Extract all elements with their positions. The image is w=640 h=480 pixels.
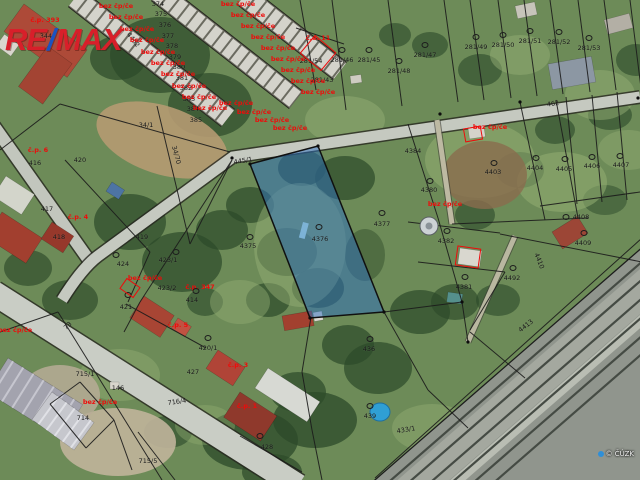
house-number-label: bez čp/če (301, 89, 335, 96)
building-use-icon (173, 249, 180, 255)
parcel-number-label: 420/1 (199, 345, 218, 352)
parcel-number-label: 146 (112, 385, 124, 392)
building-use-icon (462, 274, 469, 280)
parcel-number-label: 419 (136, 234, 148, 241)
parcel-number-label: 4382 (438, 238, 455, 245)
parcel-number-label: 4410 (533, 252, 545, 270)
building-use-icon (500, 32, 507, 38)
parcel-number-label: 414 (186, 297, 198, 304)
house-number-label: bez čp/če (130, 37, 164, 44)
parcel-number-label: 4380 (421, 187, 438, 194)
parcel-number-label: 34/1 (139, 122, 154, 129)
parcel-number-label: 716/4 (167, 397, 186, 406)
house-number-label: bez čp/če (99, 3, 133, 10)
building-use-icon (581, 230, 588, 236)
house-number-label: bez čp/če (0, 327, 32, 334)
building-use-icon (563, 214, 570, 220)
house-number-label: bez čp/če (120, 26, 154, 33)
building-use-icon (257, 433, 264, 439)
parcel-number-label: 380 (173, 64, 185, 71)
parcel-number-label: 281/51 (519, 38, 542, 45)
parcel-number-label: 714 (77, 415, 89, 422)
house-number-label: č.p. 6 (28, 147, 48, 154)
house-number-label: bez čp/če (83, 399, 117, 406)
building-outline (300, 35, 337, 71)
house-number-label: bez čp/če (128, 275, 162, 282)
parcel-number-label: 281/53 (578, 45, 601, 52)
map-labels-layer: 3443743753763773783793803813823833843853… (0, 0, 640, 480)
house-number-label: bez čp/če (261, 45, 295, 52)
parcel-number-label: 423/1 (159, 257, 178, 264)
building-use-icon (427, 178, 434, 184)
house-number-label: bez čp/če (182, 94, 216, 101)
house-number-label: bez čp/če (151, 60, 185, 67)
building-use-icon (316, 224, 323, 230)
parcel-number-label: 715/5 (139, 458, 158, 465)
parcel-number-label: 436 (363, 346, 375, 353)
house-number-label: bez čp/če (273, 125, 307, 132)
house-number-label: bez čp/če (193, 105, 227, 112)
house-number-label: bez čp/če (141, 49, 175, 56)
parcel-number-label: 281/43 (311, 77, 334, 84)
parcel-number-label: 4452 (125, 31, 140, 48)
parcel-number-label: 281/52 (548, 39, 571, 46)
parcel-number-label: 381 (176, 75, 188, 82)
parcel-number-label: 4375 (240, 243, 257, 250)
building-use-icon (339, 47, 346, 53)
parcel-number-label: 73 (63, 321, 74, 331)
building-use-icon (205, 335, 212, 341)
parcel-number-label: 281/47 (414, 52, 437, 59)
house-number-label: bez čp/če (251, 34, 285, 41)
building-use-icon (556, 29, 563, 35)
parcel-number-label: 462 (546, 100, 559, 108)
map-copyright: © ČÚZK (598, 450, 635, 458)
building-outline (455, 245, 482, 268)
building-use-icon (113, 252, 120, 258)
house-number-label: č.p. 347 (185, 284, 214, 291)
building-use-icon (527, 28, 534, 34)
parcel-number-label: 427 (187, 369, 199, 376)
parcel-number-label: 416 (29, 160, 41, 167)
house-number-label: bez čp/če (172, 83, 206, 90)
house-number-label: č.p. 3 (228, 362, 248, 369)
parcel-number-label: 4492 (504, 275, 521, 282)
house-number-label: bez čp/če (255, 117, 289, 124)
house-number-label: bez čp/če (219, 100, 253, 107)
parcel-number-label: 377 (162, 33, 174, 40)
house-number-label: bez čp/če (271, 56, 305, 63)
parcel-number-label: 423/2 (158, 285, 177, 292)
parcel-number-label: 4403 (485, 169, 502, 176)
parcel-number-label: 421 (120, 304, 132, 311)
house-number-label: bez čp/če (237, 109, 271, 116)
parcel-number-label: 374 (152, 1, 164, 8)
parcel-number-label: 418 (53, 234, 65, 241)
building-use-icon (586, 35, 593, 41)
building-use-icon (533, 155, 540, 161)
parcel-number-label: 715/1 (76, 371, 95, 378)
building-use-icon (396, 58, 403, 64)
parcel-number-label: 428 (261, 444, 273, 451)
building-outline (119, 278, 140, 298)
house-number-label: bez čp/če (109, 14, 143, 21)
building-use-icon (379, 210, 386, 216)
parcel-number-label: 4413 (517, 318, 534, 333)
house-number-label: č.p. 1 (237, 403, 257, 410)
parcel-number-label: 385 (190, 117, 202, 124)
logo-slash-icon: / (46, 22, 56, 57)
house-number-label: č.p. 4 (68, 214, 88, 221)
parcel-number-label: 417 (41, 206, 53, 213)
house-number-label: č.p. 5 (168, 322, 188, 329)
cadastral-map-image[interactable]: 3443743753763773783793803813823833843853… (0, 0, 640, 480)
parcel-number-label: 445/1 (233, 156, 253, 165)
map-provider-icon (598, 451, 604, 457)
building-use-icon (367, 403, 374, 409)
building-use-icon (589, 154, 596, 160)
parcel-number-label: 4408 (573, 214, 590, 221)
parcel-number-label: 382 (180, 85, 192, 92)
building-use-icon (473, 34, 480, 40)
logo-re: RE (5, 22, 46, 57)
house-number-label: bez čp/če (241, 23, 275, 30)
parcel-number-label: 4384 (405, 148, 422, 155)
parcel-number-label: 378 (166, 43, 178, 50)
parcel-number-label: 375 (155, 11, 167, 18)
building-outline (463, 126, 483, 143)
remax-logo: RE/MAX (5, 22, 122, 58)
house-number-label: bez čp/če (161, 71, 195, 78)
parcel-number-label: 420 (74, 157, 86, 164)
parcel-number-label: 4406 (584, 163, 601, 170)
parcel-number-label: 281/50 (492, 42, 515, 49)
parcel-number-label: 4381 (456, 284, 473, 291)
parcel-number-label: 281/49 (465, 44, 488, 51)
parcel-number-label: 4376 (312, 236, 329, 243)
parcel-number-label: 376 (159, 22, 171, 29)
building-use-icon (562, 156, 569, 162)
parcel-number-label: 424 (117, 261, 129, 268)
house-number-label: bez čp/če (281, 67, 315, 74)
parcel-number-label: 384 (187, 106, 199, 113)
building-use-icon (247, 234, 254, 240)
parcel-number-label: 383 (183, 96, 195, 103)
building-use-icon (491, 160, 498, 166)
house-number-label: bez čp/če (291, 78, 325, 85)
parcel-number-label: 281/46 (331, 57, 354, 64)
house-number-label: bez čp/če (231, 12, 265, 19)
building-use-icon (193, 288, 200, 294)
building-use-icon (510, 265, 517, 271)
logo-max: MAX (56, 22, 122, 57)
parcel-number-label: 34/70 (170, 145, 181, 165)
parcel-number-label: 4407 (613, 162, 630, 169)
building-use-icon (366, 47, 373, 53)
parcel-number-label: 4409 (575, 240, 592, 247)
building-use-icon (367, 336, 374, 342)
building-use-icon (444, 228, 451, 234)
building-use-icon (422, 42, 429, 48)
parcel-number-label: 379 (169, 54, 181, 61)
parcel-number-label: 281/48 (388, 68, 411, 75)
parcel-number-label: 4377 (374, 221, 391, 228)
parcel-number-label: 4405 (556, 166, 573, 173)
house-number-label: bez čp/če (221, 1, 255, 8)
house-number-label: bez čp/če (428, 201, 462, 208)
parcel-number-label: 4404 (527, 165, 544, 172)
parcel-number-label: 433/1 (396, 425, 416, 435)
parcel-number-label: 439 (364, 413, 376, 420)
copyright-text: © ČÚZK (606, 450, 635, 458)
parcel-number-label: 281/45 (358, 57, 381, 64)
building-use-icon (617, 153, 624, 159)
